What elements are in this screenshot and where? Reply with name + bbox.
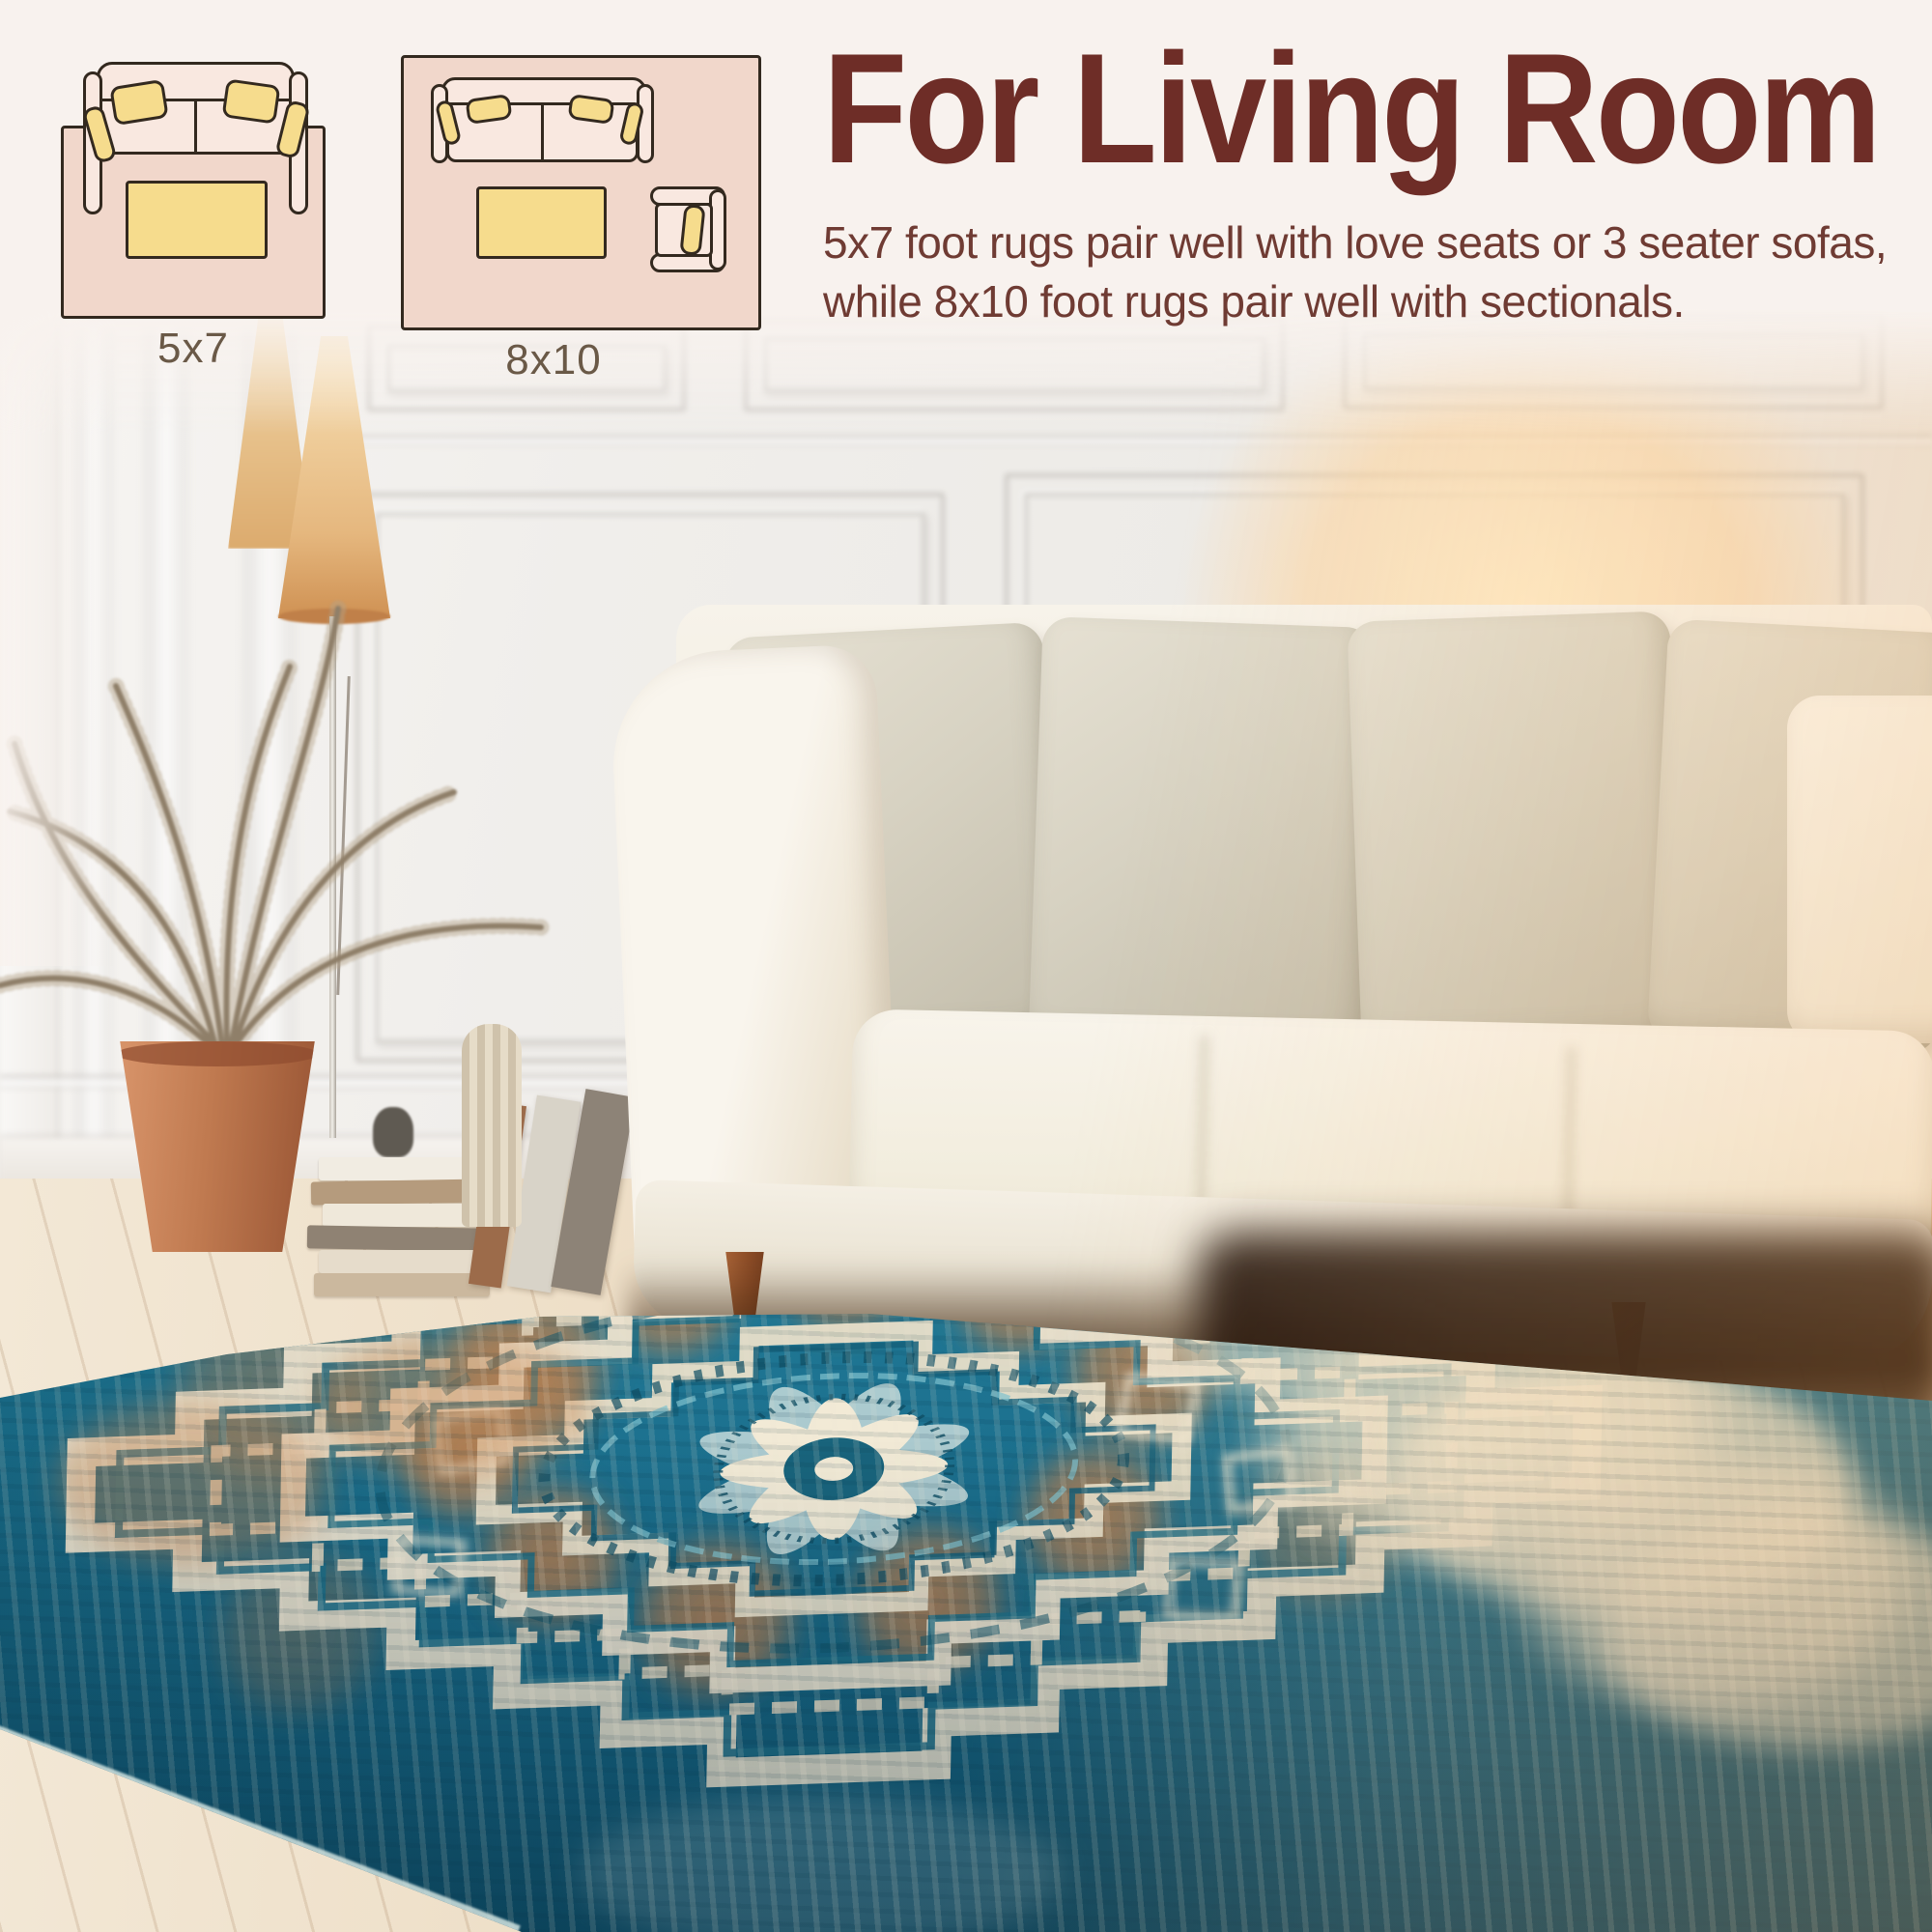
living-room-photo [0,290,1932,1932]
coffee-table [476,186,607,259]
figurine [373,1107,413,1157]
size-label-8x10: 8x10 [386,336,721,384]
product-infographic: For Living Room 5x7 foot rugs pair well … [0,0,1932,1932]
sofa-pillow [1028,616,1375,1057]
sofa-corner-cushion [1787,696,1932,1043]
sofa-pillow [1347,611,1684,1052]
headline-block: For Living Room 5x7 foot rugs pair well … [823,29,1932,332]
book [307,1225,487,1251]
page-title: For Living Room [823,29,1809,188]
fluted-vase [462,1024,522,1227]
coffee-table [126,181,268,259]
book [319,1157,481,1180]
book [319,1250,487,1273]
size-label-5x7: 5x7 [61,325,326,373]
book [311,1179,485,1205]
book [314,1273,490,1296]
sofa-pillow [221,78,280,124]
page-description: 5x7 foot rugs pair well with love seats … [823,213,1932,331]
